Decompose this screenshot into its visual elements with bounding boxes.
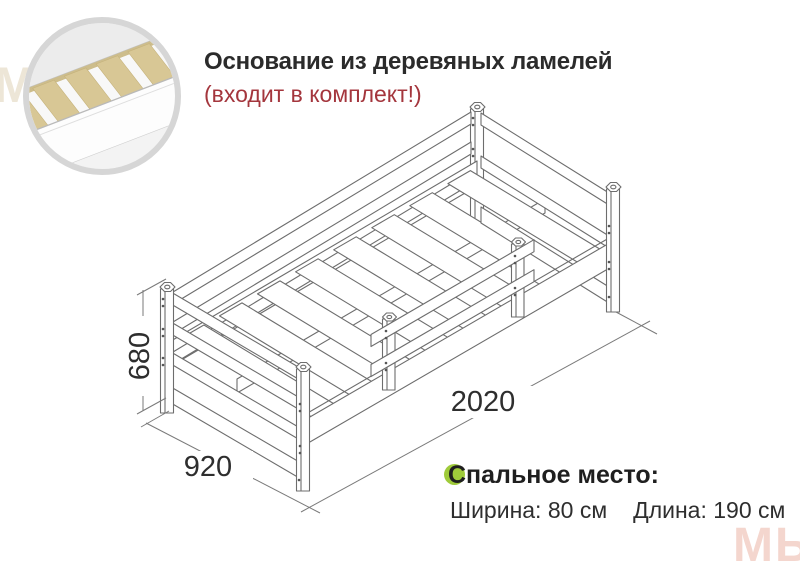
dimension-height-label: 680: [124, 316, 156, 396]
page-subtitle: (входит в комплект!): [204, 81, 612, 108]
post-front-right: [606, 183, 621, 313]
sleeping-area-heading: Спальное место:: [444, 461, 659, 489]
header: Основание из деревяных ламелей (входит в…: [204, 48, 612, 108]
bed-isometric-drawing: [160, 103, 621, 492]
slats-closeup-inset: [0, 0, 237, 218]
sleeping-area-block: Спальное место: Ширина: 80 см Длина: 190…: [444, 461, 785, 524]
dimension-length-label: 2020: [428, 386, 538, 418]
post-back-left: [160, 283, 175, 414]
page: МЫ МЫ: [0, 0, 800, 568]
sleeping-area-length: Длина: 190 см: [633, 497, 785, 524]
dimension-width-label: 920: [163, 451, 253, 483]
sleeping-area-width: Ширина: 80 см: [450, 497, 607, 524]
post-front-left: [296, 363, 311, 492]
page-title: Основание из деревяных ламелей: [204, 48, 612, 76]
